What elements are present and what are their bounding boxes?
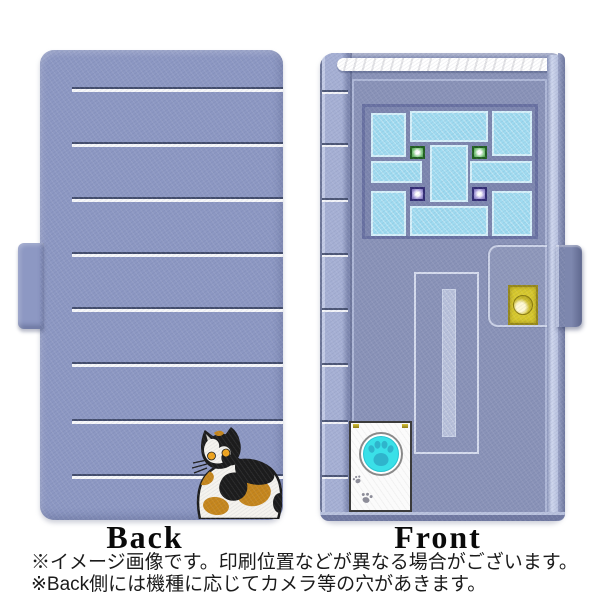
cat-eye — [208, 452, 216, 460]
back-stripe — [72, 362, 283, 367]
window-pane — [430, 145, 468, 202]
back-cover — [40, 50, 283, 520]
green-led — [472, 146, 487, 159]
spine-band — [322, 308, 348, 312]
window-pane — [470, 161, 532, 183]
spine — [320, 53, 350, 521]
window-pane — [371, 113, 406, 157]
spine-band — [322, 90, 348, 94]
spine-band — [322, 475, 348, 479]
strap-end — [556, 245, 582, 327]
back-stripe — [72, 307, 283, 312]
mail-slot — [442, 289, 456, 437]
view-labels: Back Front — [0, 519, 600, 555]
back-stripe — [72, 419, 283, 424]
back-stripe — [72, 252, 283, 257]
strap-tab — [18, 243, 44, 329]
door-top-frame — [337, 58, 558, 71]
screw-icon — [353, 424, 359, 428]
window-pane — [410, 111, 488, 142]
window-pane — [371, 161, 422, 183]
back-view-label: Back — [60, 519, 230, 556]
disclaimer-line-2: ※Back側には機種に応じてカメラ等の穴があきます。 — [31, 574, 578, 596]
front-view-label: Front — [353, 519, 523, 556]
purple-led — [472, 187, 487, 201]
window-pane — [410, 206, 488, 236]
front-cover — [320, 53, 565, 521]
cat-whiskers — [192, 460, 207, 473]
spine-band — [322, 143, 348, 147]
spine-band — [322, 363, 348, 367]
cat-eye — [222, 449, 230, 457]
paw-print-icon — [358, 431, 404, 477]
screw-icon — [402, 424, 408, 428]
snap-button-icon — [508, 285, 538, 325]
paw-prints-icon — [352, 473, 376, 509]
product-showcase: Back Front ※イメージ画像です。印刷位置などが異なる場合がございます。… — [0, 0, 600, 600]
disclaimer-line-1: ※イメージ画像です。印刷位置などが異なる場合がございます。 — [31, 552, 578, 574]
purple-led — [410, 187, 425, 201]
back-stripe — [72, 87, 283, 92]
spine-band — [322, 198, 348, 202]
door-window — [362, 104, 538, 239]
back-stripe — [72, 197, 283, 202]
doorbell-box — [349, 421, 412, 512]
back-stripe — [72, 142, 283, 147]
window-pane — [371, 191, 406, 236]
disclaimer-notes: ※イメージ画像です。印刷位置などが異なる場合がございます。 ※Back側には機種… — [31, 552, 578, 596]
calico-cat-illustration — [192, 427, 282, 519]
spine-band — [322, 253, 348, 257]
window-pane — [492, 111, 532, 156]
window-pane — [492, 191, 532, 236]
green-led — [410, 146, 425, 159]
spine-band — [322, 420, 348, 424]
